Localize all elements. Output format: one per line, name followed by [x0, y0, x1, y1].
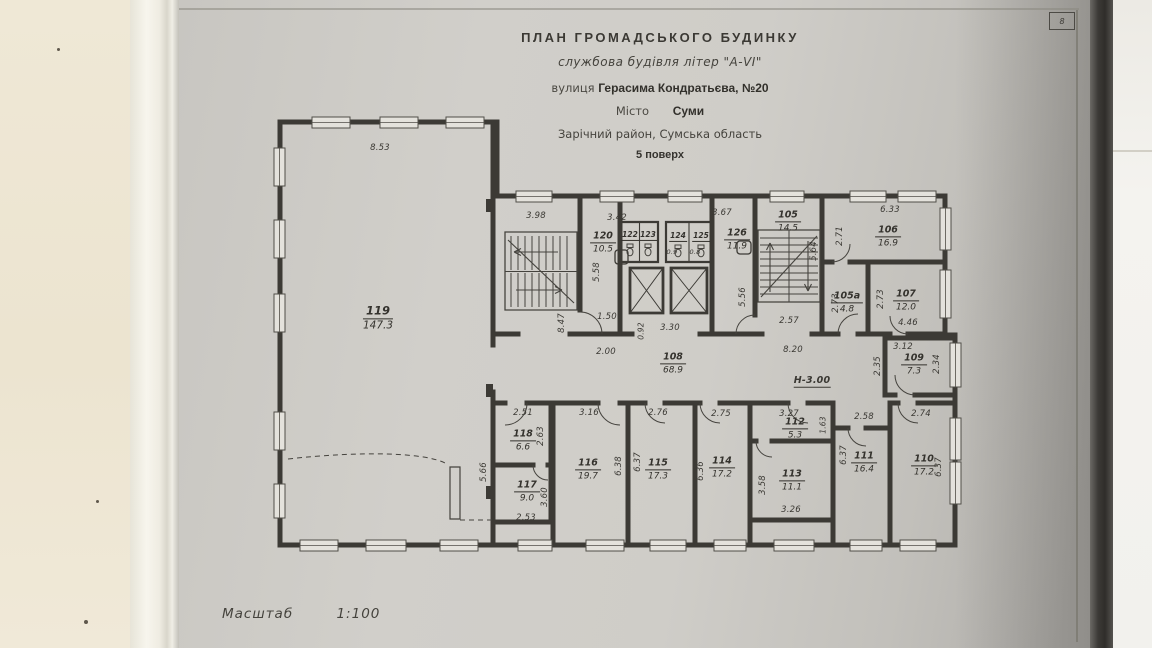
scale-value: 1:100	[336, 606, 380, 622]
floor-plan-drawing	[0, 0, 1152, 648]
scale-label: Масштаб	[222, 606, 293, 622]
elevator-shafts-icon	[615, 241, 751, 313]
stairs-right-icon	[758, 230, 820, 302]
photo-of-floor-plan-document: 8 ПЛАН ГРОМАДСЬКОГО БУДИНКУ службова буд…	[0, 0, 1152, 648]
stairs-left-icon	[505, 232, 577, 310]
scale-note: Масштаб 1:100	[222, 606, 380, 622]
dashed-lines-layer	[288, 454, 495, 520]
walls-layer	[280, 122, 955, 545]
